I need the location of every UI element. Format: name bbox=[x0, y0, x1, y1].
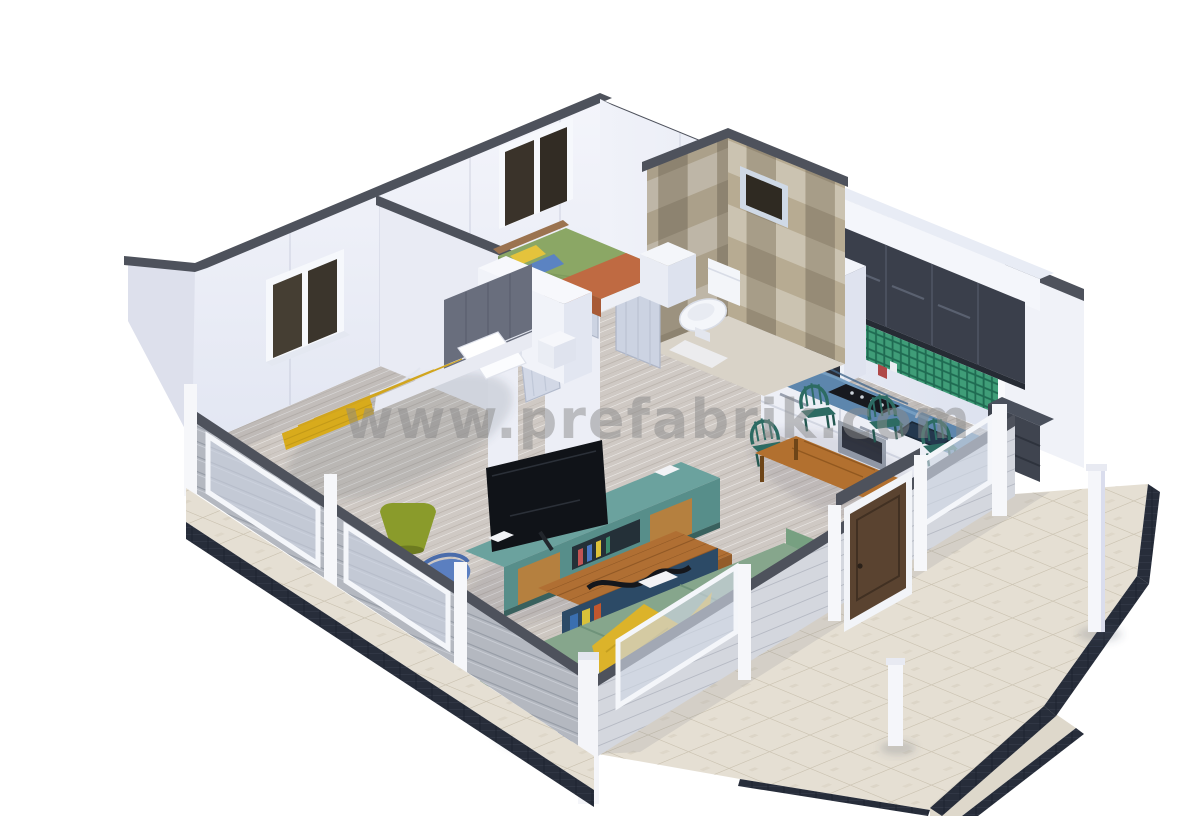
post bbox=[914, 455, 927, 571]
post bbox=[324, 474, 337, 590]
watermark-text: www.prefabrik.com bbox=[344, 388, 972, 451]
post bbox=[992, 404, 1007, 516]
post bbox=[184, 384, 197, 496]
post bbox=[454, 562, 467, 678]
floorplan-render: www.prefabrik.com bbox=[40, 16, 1200, 816]
post bbox=[738, 564, 751, 680]
scene-svg: www.prefabrik.com bbox=[40, 16, 1200, 816]
post bbox=[828, 505, 841, 621]
door-handle bbox=[857, 563, 862, 568]
deck-post bbox=[888, 662, 903, 746]
kids-dresser bbox=[640, 242, 696, 308]
